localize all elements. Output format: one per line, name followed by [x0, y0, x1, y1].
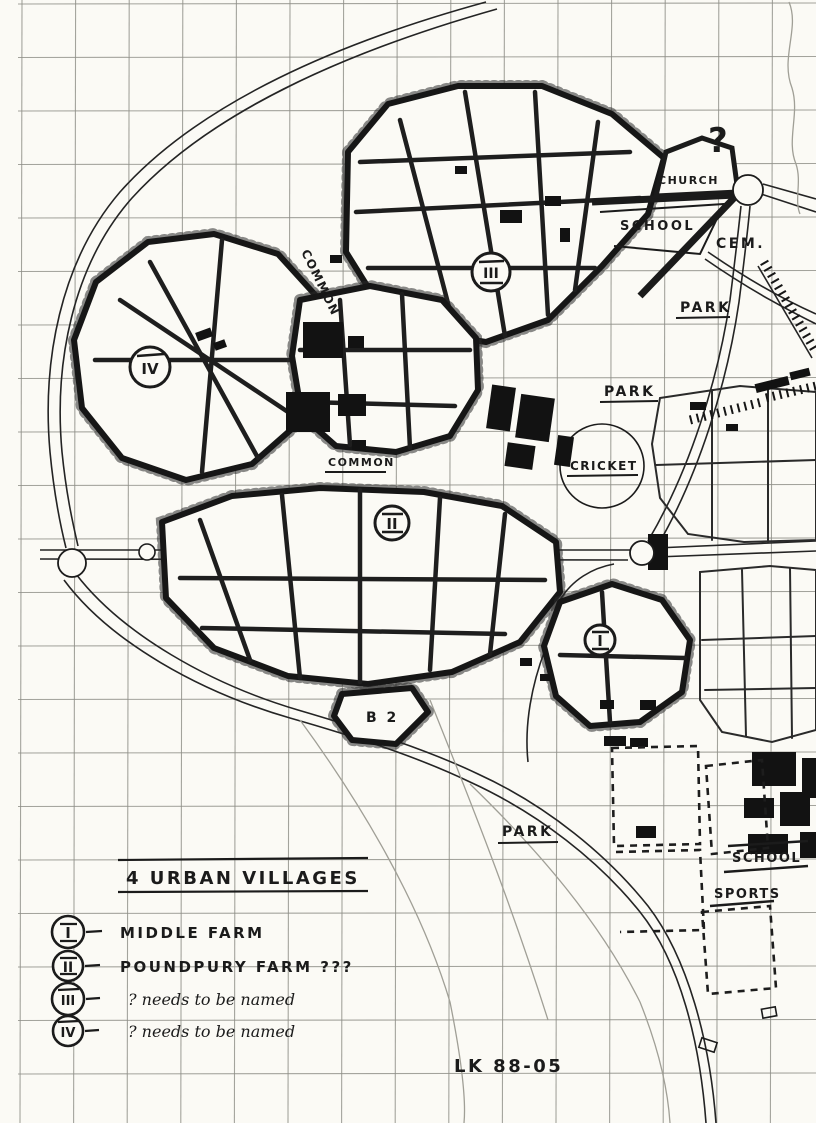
- cricket-label: CRICKET: [567, 459, 638, 476]
- svg-text:III: III: [483, 266, 499, 282]
- marker-village-iii: III: [472, 253, 510, 291]
- village-cluster-ii: [162, 488, 560, 684]
- church-label: CHURCH: [658, 174, 719, 187]
- park-lower-label: PARK: [498, 824, 558, 843]
- school-top-label: SCHOOL: [620, 219, 695, 234]
- svg-text:IV: IV: [141, 360, 159, 378]
- svg-text:III: III: [61, 994, 76, 1009]
- cem-label: CEM.: [716, 236, 765, 252]
- svg-text:PARK: PARK: [502, 824, 553, 840]
- legend-entry-label: POUNDPURY FARM ???: [120, 958, 354, 976]
- svg-text:SPORTS: SPORTS: [714, 887, 781, 902]
- legend-entry-label: ? needs to be named: [128, 1022, 295, 1041]
- svg-text:I: I: [65, 924, 71, 942]
- scanned-sketch-page: ? CHURCH SCHOOL CEM. PARK PARK CRICKET C…: [0, 0, 816, 1123]
- question-mark-label: ?: [708, 121, 728, 161]
- village-cluster-i: [544, 584, 690, 726]
- sports-label: SPORTS: [710, 887, 781, 906]
- urban-villages-map: ? CHURCH SCHOOL CEM. PARK PARK CRICKET C…: [0, 0, 816, 1123]
- legend-title: 4 URBAN VILLAGES: [126, 868, 360, 889]
- marker-village-i: I: [585, 625, 615, 655]
- svg-text:II: II: [386, 515, 397, 533]
- legend-entry-i: I MIDDLE FARM: [52, 916, 265, 948]
- marker-village-ii: II: [375, 506, 409, 540]
- svg-text:CRICKET: CRICKET: [570, 459, 638, 473]
- legend-entry-label: ? needs to be named: [128, 990, 295, 1009]
- park-mid-label: PARK: [600, 384, 658, 402]
- signature: LK 88-05: [454, 1056, 563, 1077]
- svg-text:COMMON: COMMON: [328, 456, 395, 469]
- svg-text:II: II: [63, 960, 73, 976]
- svg-text:I: I: [597, 632, 603, 650]
- common-horizontal-label: COMMON: [325, 456, 395, 472]
- park-upper-label: PARK: [676, 300, 731, 318]
- marker-village-iv: IV: [130, 347, 170, 387]
- legend-entry-label: MIDDLE FARM: [120, 924, 265, 942]
- legend-title-block: 4 URBAN VILLAGES: [118, 858, 368, 892]
- svg-text:IV: IV: [61, 1026, 76, 1041]
- svg-text:SCHOOL: SCHOOL: [732, 851, 801, 866]
- farm-building-outlines: [699, 1007, 777, 1052]
- legend-entry-ii: II POUNDPURY FARM ???: [53, 951, 354, 981]
- legend: 4 URBAN VILLAGES I MIDDLE FARM II POUNDP…: [52, 858, 563, 1077]
- b2-label: B 2: [366, 710, 399, 726]
- east-blocks-north: [652, 386, 816, 542]
- legend-entry-iii: III ? needs to be named: [52, 983, 295, 1015]
- svg-text:PARK: PARK: [680, 300, 731, 316]
- svg-text:PARK: PARK: [604, 384, 655, 400]
